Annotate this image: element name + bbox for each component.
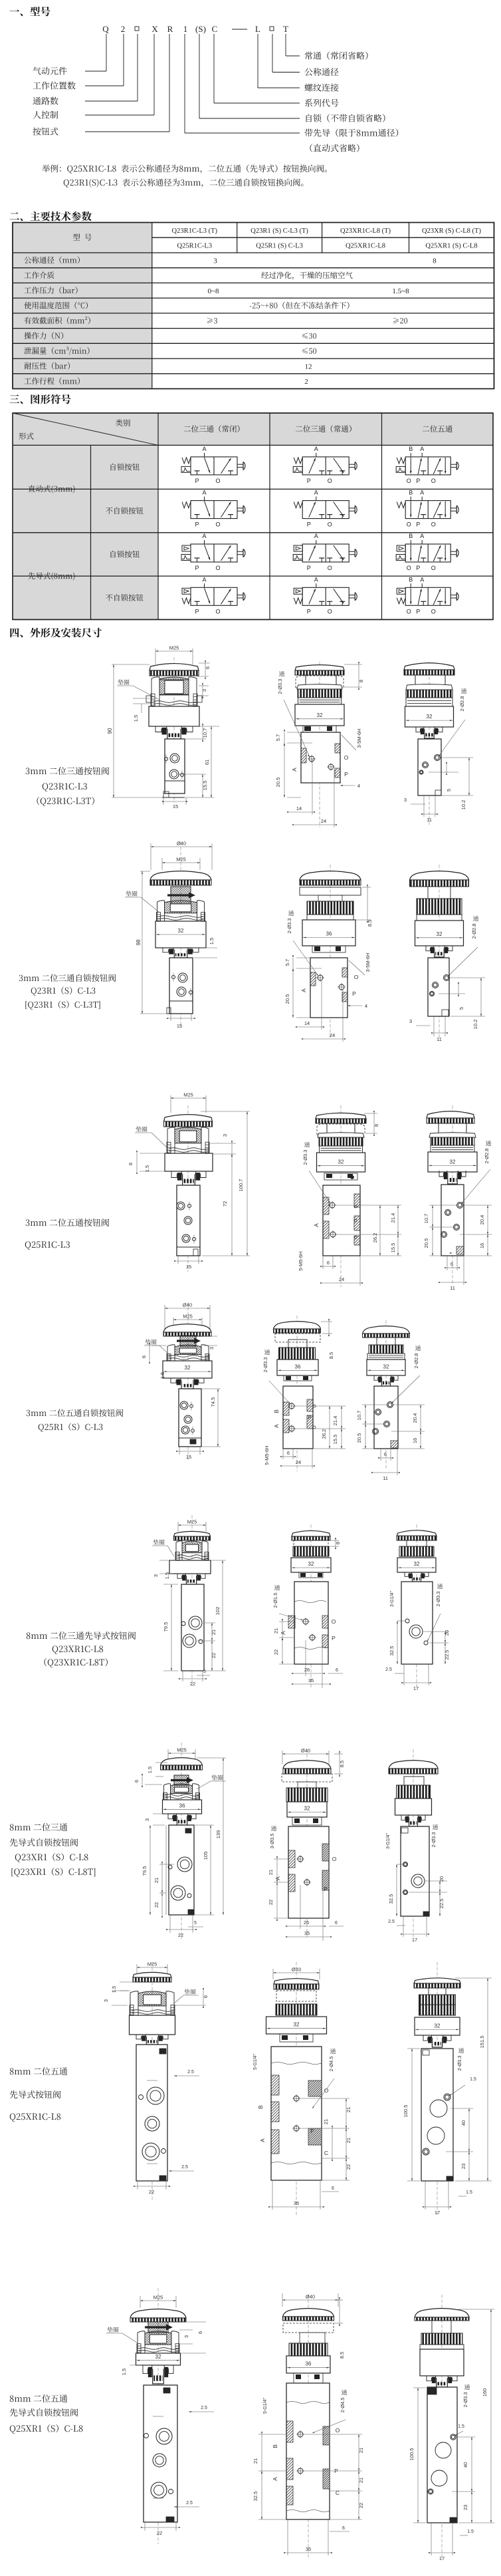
svg-text:O: O [431,608,436,615]
svg-text:10.7: 10.7 [356,1411,362,1421]
svg-text:12: 12 [305,362,312,370]
svg-text:O: O [431,521,436,528]
svg-text:2.5: 2.5 [385,1667,392,1672]
svg-text:98: 98 [136,939,142,945]
svg-text:P: P [307,478,311,484]
svg-text:5-M5-6H: 5-M5-6H [298,1251,304,1270]
svg-text:21: 21 [211,1630,217,1635]
svg-text:14: 14 [296,805,302,811]
svg-text:22: 22 [178,1932,183,1938]
svg-text:P: P [307,608,311,615]
svg-text:A: A [313,1223,320,1227]
svg-text:32: 32 [437,931,443,937]
svg-text:1.5: 1.5 [470,2077,476,2082]
svg-text:36: 36 [179,1802,185,1808]
svg-text:1.5: 1.5 [147,1767,153,1773]
svg-text:32: 32 [294,2022,300,2028]
svg-text:O: O [332,1618,336,1625]
svg-text:O: O [332,1856,337,1862]
svg-text:24: 24 [296,1459,301,1465]
svg-text:3-G1/4": 3-G1/4" [390,1591,395,1607]
svg-text:1.5: 1.5 [111,1986,117,1993]
svg-text:5-G1/4": 5-G1/4" [263,2398,268,2414]
svg-text:8.5: 8.5 [339,1761,345,1767]
svg-text:100.7: 100.7 [238,1179,244,1192]
svg-text:21: 21 [358,2448,364,2453]
svg-text:20.4: 20.4 [479,1215,485,1225]
svg-text:M25: M25 [148,1961,157,1967]
svg-text:1.5: 1.5 [466,2190,472,2195]
svg-text:1.5: 1.5 [467,2529,474,2534]
svg-text:21: 21 [346,2107,351,2112]
svg-text:139: 139 [215,1830,221,1839]
svg-text:8: 8 [433,257,437,265]
svg-text:2-Ø4.5: 2-Ø4.5 [328,2057,334,2072]
svg-text:P: P [344,771,348,778]
svg-text:5-M5-6H: 5-M5-6H [264,1445,270,1465]
svg-text:20.5: 20.5 [284,994,290,1004]
svg-text:151.5: 151.5 [479,2036,485,2049]
svg-text:0~8: 0~8 [208,287,219,295]
svg-text:O: O [215,565,220,571]
svg-text:2-Ø3.3: 2-Ø3.3 [262,1358,268,1373]
svg-text:O: O [407,478,411,484]
svg-text:3: 3 [183,2335,189,2338]
svg-text:6: 6 [197,2331,203,2334]
svg-text:A: A [420,533,424,539]
svg-text:1.5: 1.5 [458,2424,464,2429]
svg-text:Q25XR1 (S) C-L8: Q25XR1 (S) C-L8 [425,243,477,250]
svg-text:4: 4 [365,1003,367,1009]
svg-text:P: P [416,521,420,528]
svg-text:B: B [273,1409,280,1413]
svg-text:24: 24 [330,1032,335,1038]
svg-text:A: A [420,576,424,583]
svg-text:2-Ø2.8: 2-Ø2.8 [471,924,477,939]
svg-text:O: O [324,2087,329,2094]
svg-text:10.7: 10.7 [423,1214,429,1224]
svg-text:M25: M25 [187,1519,197,1525]
svg-text:32: 32 [304,1806,310,1812]
svg-text:15: 15 [186,1264,191,1270]
svg-text:21.4: 21.4 [332,1416,338,1426]
svg-text:17: 17 [435,2210,440,2216]
svg-text:5-G1/4": 5-G1/4" [253,2054,258,2070]
svg-text:C: C [212,24,218,34]
svg-text:O: O [431,565,436,571]
svg-text:P: P [308,1414,312,1421]
svg-text:32: 32 [317,712,323,718]
svg-text:6: 6 [128,1163,134,1165]
svg-text:3: 3 [404,797,407,803]
svg-text:A: A [202,446,206,452]
svg-text:21: 21 [323,2119,329,2124]
svg-text:32: 32 [414,1561,420,1567]
svg-text:10.7: 10.7 [202,728,208,738]
svg-text:32: 32 [427,714,433,720]
svg-text:3-Ø3.5: 3-Ø3.5 [269,1834,275,1849]
svg-text:32: 32 [178,928,184,934]
svg-text:6: 6 [205,666,211,669]
svg-text:A: A [420,446,424,452]
svg-text:T: T [283,24,288,34]
svg-text:6: 6 [335,1921,338,1926]
svg-text:2-Ø2.8: 2-Ø2.8 [413,1354,419,1369]
svg-text:8: 8 [335,1542,341,1544]
svg-text:21: 21 [346,2138,351,2143]
svg-text:2-Ø3.3: 2-Ø3.3 [456,2056,462,2071]
svg-text:32: 32 [338,1159,344,1165]
svg-text:6: 6 [141,1356,147,1358]
svg-text:10.2: 10.2 [460,800,466,810]
svg-text:5: 5 [446,789,452,791]
svg-text:Q25R1 (S) C-L3: Q25R1 (S) C-L3 [256,243,303,250]
svg-text:Q23XR1C-L8 (T): Q23XR1C-L8 (T) [340,227,391,235]
svg-text:72: 72 [222,1201,228,1207]
svg-text:105: 105 [203,1852,209,1860]
svg-text:22: 22 [157,2530,162,2536]
svg-text:B: B [409,490,413,496]
svg-text:A: A [202,576,206,583]
svg-text:90: 90 [107,728,113,734]
svg-text:M25: M25 [177,1747,187,1753]
svg-text:B: B [257,2105,264,2109]
svg-text:8.5: 8.5 [328,1352,334,1359]
svg-text:2-Ø3.3: 2-Ø3.3 [277,679,283,694]
svg-text:6: 6 [451,1261,453,1267]
svg-text:P: P [195,521,199,528]
svg-text:O: O [215,608,220,615]
svg-text:3-G1/4": 3-G1/4" [386,1833,391,1849]
svg-text:36: 36 [326,931,332,937]
svg-text:8: 8 [373,1124,379,1127]
svg-text:P: P [416,608,420,615]
svg-text:15: 15 [177,1023,182,1029]
svg-text:35: 35 [308,1677,314,1683]
svg-text:2-Ø2.8: 2-Ø2.8 [459,696,465,712]
svg-text:P: P [195,565,199,571]
svg-text:4: 4 [357,783,360,789]
svg-text:21: 21 [153,1878,159,1883]
svg-text:20.5: 20.5 [356,1433,362,1443]
svg-text:5: 5 [458,1007,464,1010]
svg-text:6: 6 [327,1260,330,1266]
svg-text:6: 6 [203,1995,209,1998]
svg-text:11: 11 [437,1036,442,1042]
svg-text:17: 17 [412,1937,417,1943]
svg-text:O: O [215,478,220,484]
svg-text:24: 24 [321,818,326,824]
svg-text:Ø40: Ø40 [183,1302,192,1308]
svg-text:10.2: 10.2 [472,1020,478,1030]
svg-text:A: A [272,2477,278,2481]
svg-text:P: P [195,608,199,615]
svg-text:20: 20 [444,1630,450,1636]
svg-text:O: O [354,974,359,980]
svg-text:22: 22 [268,1900,274,1905]
svg-text:Ø40: Ø40 [177,841,186,847]
svg-text:1.5: 1.5 [133,715,139,722]
svg-text:22: 22 [273,1649,279,1655]
svg-text:3: 3 [144,1818,150,1821]
svg-text:A: A [300,988,307,992]
svg-text:B: B [409,446,413,452]
svg-text:2.5: 2.5 [186,2501,193,2505]
svg-text:3-5M-6H: 3-5M-6H [365,952,371,972]
svg-text:14: 14 [304,1020,310,1026]
svg-text:21: 21 [268,1870,274,1875]
svg-text:P: P [307,565,311,571]
svg-text:P: P [324,1886,328,1892]
svg-text:2.5: 2.5 [187,2070,194,2075]
svg-text:5.7: 5.7 [284,959,290,966]
svg-text:22: 22 [149,2189,154,2195]
svg-text:15: 15 [186,1454,191,1460]
svg-text:2-Ø4.5: 2-Ø4.5 [340,2398,346,2413]
svg-text:1.5: 1.5 [121,2368,127,2375]
svg-text:M25: M25 [176,857,186,863]
svg-text:Q23R1 (S) C-L3 (T): Q23R1 (S) C-L3 (T) [250,227,308,235]
svg-text:2: 2 [121,24,126,34]
svg-text:A: A [314,533,318,539]
svg-text:3: 3 [222,1134,228,1137]
svg-text:32: 32 [308,1561,314,1567]
svg-text:M25: M25 [153,2295,163,2301]
svg-text:2-Ø2.8: 2-Ø2.8 [484,1149,490,1164]
svg-text:B: B [409,576,413,583]
svg-text:22: 22 [358,2503,364,2508]
svg-text:O: O [336,2427,340,2434]
svg-text:5: 5 [203,1669,206,1674]
svg-text:P: P [332,1635,336,1642]
svg-text:8: 8 [358,680,364,682]
svg-text:Q: Q [102,24,109,34]
svg-text:2-Ø3.3: 2-Ø3.3 [462,2392,468,2408]
svg-text:16: 16 [479,1243,485,1248]
svg-text:40: 40 [460,2120,466,2126]
svg-text:16: 16 [412,1438,418,1443]
svg-text:20.5: 20.5 [423,1238,429,1248]
svg-text:22.5: 22.5 [444,1650,450,1660]
svg-text:102: 102 [215,1607,221,1616]
svg-text:A: A [274,1876,281,1880]
svg-text:15.5: 15.5 [332,1435,338,1445]
svg-text:M25: M25 [169,645,179,651]
svg-text:2: 2 [304,378,308,386]
svg-text:C: C [324,2150,328,2156]
svg-text:5: 5 [194,1921,197,1926]
svg-text:Ø40: Ø40 [306,2294,315,2300]
svg-text:A: A [420,490,424,496]
svg-text:3: 3 [103,1999,109,2002]
svg-text:6: 6 [384,1451,387,1457]
svg-text:2-Ø3.3: 2-Ø3.3 [286,919,292,934]
svg-text:6: 6 [332,2186,334,2191]
svg-text:Q23R1C-L3 (T): Q23R1C-L3 (T) [172,227,218,235]
svg-text:A: A [202,490,206,496]
svg-text:6: 6 [342,2526,345,2531]
svg-text:22: 22 [153,1902,159,1908]
svg-text:6: 6 [336,1668,338,1673]
svg-text:A: A [314,576,318,583]
svg-text:24: 24 [339,1276,344,1282]
svg-text:O: O [328,565,332,571]
svg-text:8.5: 8.5 [367,920,373,927]
svg-text:1.5: 1.5 [209,938,215,944]
svg-text:8.5: 8.5 [339,2352,345,2359]
svg-text:3: 3 [209,1347,215,1350]
svg-text:2-Ø1.5: 2-Ø1.5 [272,1593,278,1608]
svg-text:22.5: 22.5 [439,1899,445,1909]
svg-text:6: 6 [134,1780,140,1783]
svg-text:23: 23 [460,2164,466,2169]
svg-text:20.5: 20.5 [275,778,281,787]
svg-text:15: 15 [173,803,178,809]
svg-text:100.5: 100.5 [403,2105,409,2118]
svg-text:M25: M25 [183,1092,193,1098]
svg-text:40: 40 [462,2462,468,2468]
svg-text:2.5: 2.5 [201,2406,207,2410]
svg-text:1.5~8: 1.5~8 [392,287,409,295]
svg-text:1.5: 1.5 [164,1572,170,1579]
svg-text:15.5: 15.5 [202,781,208,791]
svg-text:O: O [407,608,411,615]
svg-text:35: 35 [294,2200,299,2206]
svg-text:P: P [352,990,356,997]
svg-text:20.4: 20.4 [412,1413,418,1423]
svg-text:21: 21 [273,1628,279,1634]
svg-text:3: 3 [213,257,217,265]
svg-text:B: B [272,2444,278,2448]
svg-text:3: 3 [153,1574,159,1577]
svg-text:Q23XR (S) C-L8 (T): Q23XR (S) C-L8 (T) [422,227,481,235]
svg-text:36: 36 [295,1363,301,1369]
svg-text:2-Ø3.3: 2-Ø3.3 [435,1592,441,1607]
svg-text:32.5: 32.5 [252,2492,258,2502]
svg-text:A: A [280,1631,286,1635]
svg-text:O: O [407,565,411,571]
svg-text:O: O [328,478,332,484]
svg-text:P: P [307,521,311,528]
svg-text:P: P [416,565,420,571]
svg-text:A: A [314,490,318,496]
svg-text:1: 1 [183,24,188,34]
svg-text:3-5M-6H: 3-5M-6H [356,728,362,748]
svg-text:R: R [167,24,173,34]
svg-text:C: C [336,2490,340,2496]
svg-text:2.5: 2.5 [388,1920,395,1924]
svg-text:32: 32 [383,1363,389,1369]
svg-text:X: X [151,24,158,34]
svg-text:(S): (S) [195,24,206,34]
svg-text:P: P [310,2128,314,2134]
svg-text:17: 17 [439,2555,445,2561]
svg-text:26.2: 26.2 [321,1429,327,1439]
svg-text:11: 11 [427,817,432,823]
svg-text:23: 23 [462,2505,468,2510]
svg-text:P: P [195,478,199,484]
svg-text:Q25XR1C-L8: Q25XR1C-L8 [346,243,385,250]
svg-text:1.5: 1.5 [159,1372,165,1379]
svg-text:O: O [431,478,436,484]
svg-text:15.5: 15.5 [390,1243,396,1253]
svg-text:A: A [291,768,298,772]
svg-text:O: O [407,521,411,528]
svg-text:32.5: 32.5 [388,1894,394,1904]
svg-text:P: P [416,478,420,484]
svg-text:32: 32 [185,1365,191,1371]
svg-text:26: 26 [304,1667,310,1673]
svg-text:32: 32 [450,1159,456,1165]
svg-text:100.5: 100.5 [409,2448,415,2461]
svg-text:32: 32 [155,2354,161,2360]
svg-text:21: 21 [252,2458,258,2464]
svg-text:17: 17 [413,1685,419,1691]
svg-text:26: 26 [304,1920,309,1926]
svg-text:A: A [202,533,206,539]
svg-text:O: O [344,754,349,761]
svg-text:21: 21 [358,2478,364,2483]
svg-text:11: 11 [383,1475,388,1481]
svg-text:5.7: 5.7 [275,734,281,741]
svg-text:O: O [328,521,332,528]
svg-text:3: 3 [201,689,207,692]
svg-text:20: 20 [439,1876,445,1882]
svg-text:11: 11 [450,1285,455,1291]
svg-text:32: 32 [435,2023,441,2029]
svg-text:79.5: 79.5 [163,1622,169,1632]
svg-text:2-Ø3.3: 2-Ø3.3 [431,1832,437,1848]
svg-text:1.5: 1.5 [144,1165,150,1172]
svg-text:A: A [273,1424,280,1428]
svg-text:26.2: 26.2 [372,1233,378,1243]
svg-text:A: A [314,446,318,452]
svg-text:35: 35 [306,2546,311,2552]
svg-text:160: 160 [482,2388,488,2397]
svg-text:Ø40: Ø40 [301,1748,310,1754]
svg-text:A: A [259,2138,266,2142]
svg-text:22: 22 [190,1681,195,1687]
svg-text:2.5: 2.5 [181,2165,188,2170]
svg-text:Ø33: Ø33 [292,1967,301,1973]
svg-text:61: 61 [204,760,210,765]
svg-text:2-Ø3.3: 2-Ø3.3 [302,1150,308,1165]
svg-text:3: 3 [409,1018,412,1024]
svg-text:79.5: 79.5 [142,1866,148,1876]
svg-text:O: O [215,521,220,528]
svg-text:Q25R1C-L3: Q25R1C-L3 [177,243,213,250]
svg-text:M25: M25 [183,1314,193,1320]
svg-text:32.5: 32.5 [389,1646,395,1656]
svg-text:36: 36 [306,2361,312,2367]
svg-text:B: B [409,533,413,539]
svg-text:O: O [328,608,332,615]
svg-text:22: 22 [211,1653,217,1658]
svg-text:74.5: 74.5 [210,1397,216,1407]
svg-text:L: L [255,24,260,34]
svg-text:21.4: 21.4 [390,1213,396,1223]
svg-text:22: 22 [346,2164,351,2170]
svg-text:35: 35 [304,1930,310,1936]
svg-text:6: 6 [287,1450,290,1456]
